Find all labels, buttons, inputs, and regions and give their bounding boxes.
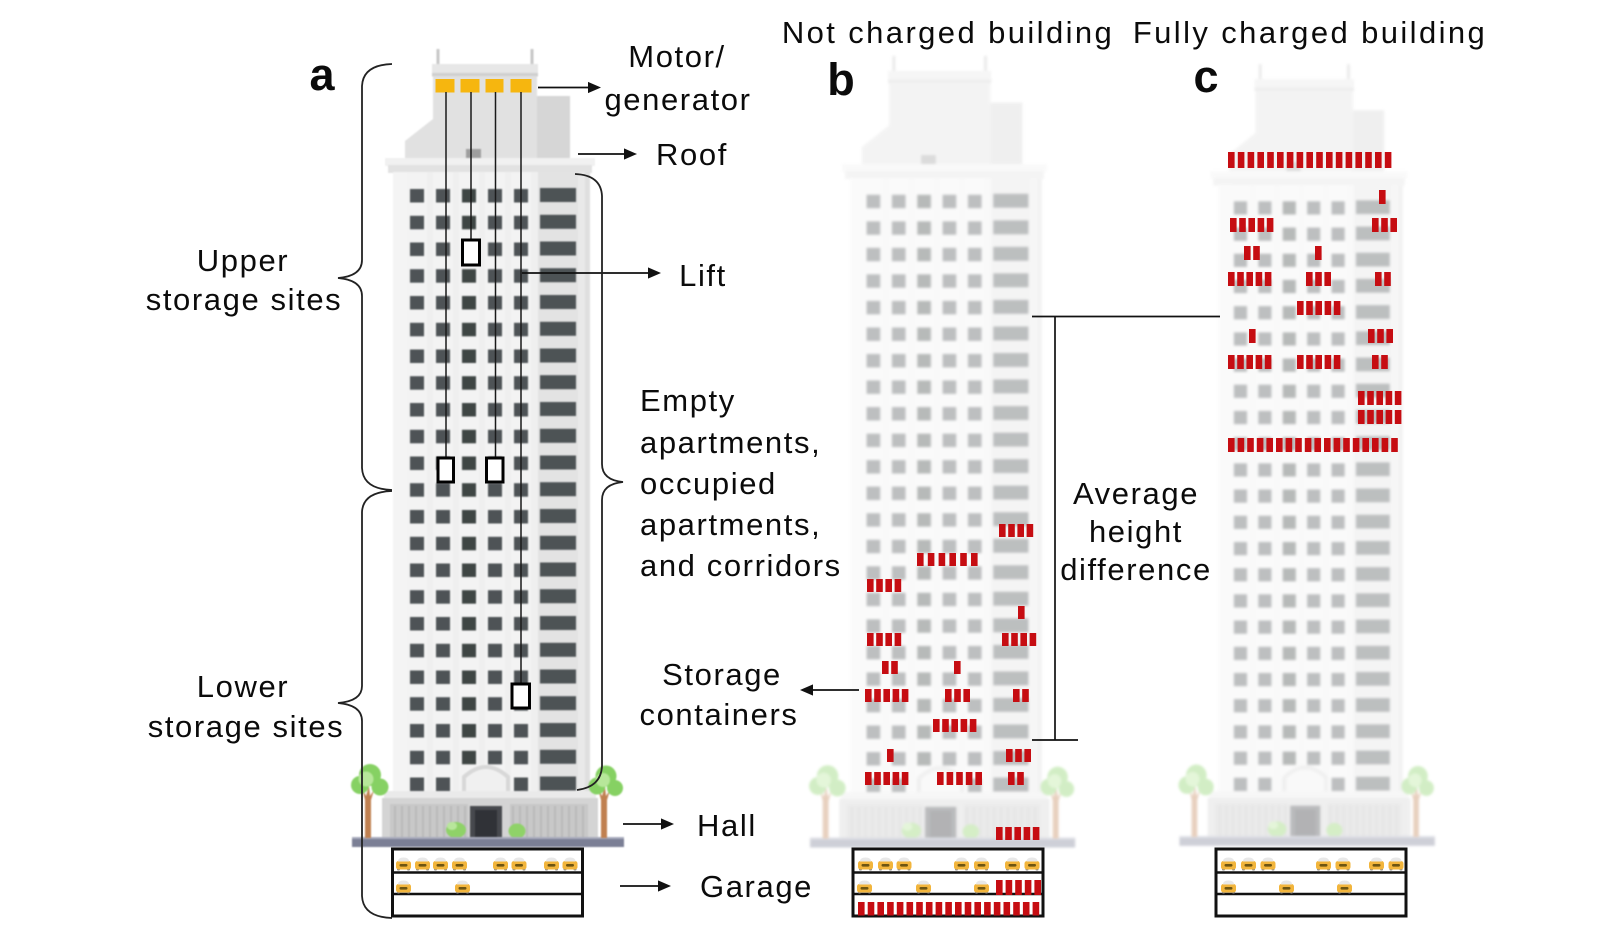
svg-text:difference: difference: [1060, 552, 1212, 587]
svg-text:Lift: Lift: [679, 258, 727, 293]
svg-text:and corridors: and corridors: [640, 548, 842, 583]
svg-text:c: c: [1193, 51, 1218, 102]
svg-text:containers: containers: [639, 697, 798, 732]
svg-text:height: height: [1089, 514, 1183, 549]
svg-text:apartments,: apartments,: [640, 507, 821, 542]
svg-text:Not charged building: Not charged building: [782, 15, 1114, 50]
svg-text:Garage: Garage: [700, 869, 813, 904]
svg-text:Empty: Empty: [640, 383, 736, 418]
svg-text:Fully charged building: Fully charged building: [1133, 15, 1487, 50]
svg-text:generator: generator: [604, 82, 751, 117]
svg-text:Lower: Lower: [197, 669, 289, 704]
svg-text:Hall: Hall: [697, 808, 757, 843]
svg-text:Upper: Upper: [197, 243, 289, 278]
svg-text:apartments,: apartments,: [640, 425, 821, 460]
svg-text:storage sites: storage sites: [146, 282, 343, 317]
svg-text:b: b: [827, 54, 855, 105]
svg-text:occupied: occupied: [640, 466, 777, 501]
svg-text:a: a: [309, 49, 335, 100]
svg-text:Average: Average: [1073, 476, 1199, 511]
svg-text:Roof: Roof: [656, 137, 728, 172]
svg-text:Motor/: Motor/: [628, 39, 725, 74]
svg-text:storage sites: storage sites: [148, 709, 345, 744]
svg-text:Storage: Storage: [662, 657, 782, 692]
